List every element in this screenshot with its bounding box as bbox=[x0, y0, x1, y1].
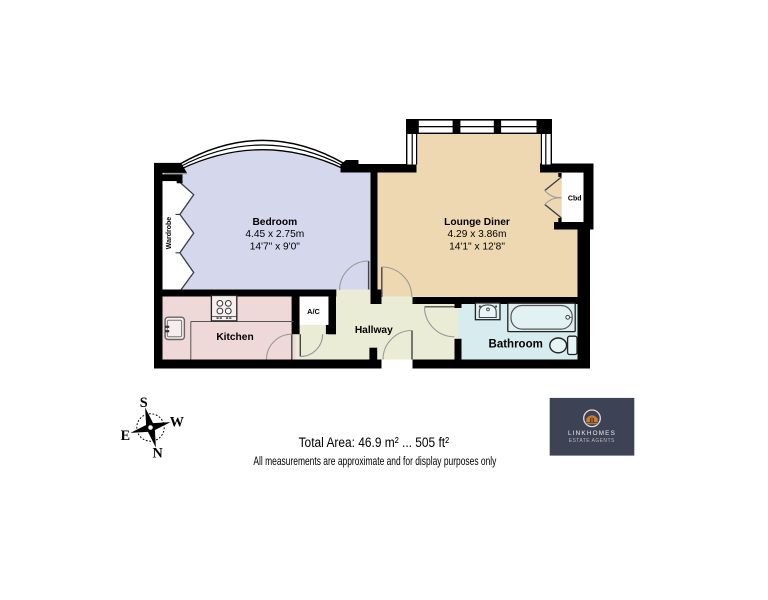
svg-text:A/C: A/C bbox=[307, 307, 320, 316]
svg-text:S: S bbox=[140, 395, 148, 411]
svg-text:14'1" x 12'8": 14'1" x 12'8" bbox=[449, 242, 505, 253]
svg-text:Hallway: Hallway bbox=[355, 325, 393, 336]
svg-text:Cbd: Cbd bbox=[568, 196, 582, 203]
svg-text:E: E bbox=[121, 428, 130, 444]
svg-text:Lounge Diner: Lounge Diner bbox=[444, 217, 510, 228]
svg-text:Bedroom: Bedroom bbox=[252, 217, 297, 228]
svg-text:Bathroom: Bathroom bbox=[489, 338, 543, 350]
svg-text:N: N bbox=[152, 446, 163, 462]
svg-text:LINKHOMES: LINKHOMES bbox=[568, 430, 616, 437]
svg-text:W: W bbox=[170, 414, 184, 430]
svg-text:14'7" x 9'0": 14'7" x 9'0" bbox=[250, 242, 301, 253]
svg-text:ESTATE AGENTS: ESTATE AGENTS bbox=[569, 438, 616, 444]
svg-text:Wardrobe: Wardrobe bbox=[166, 217, 173, 250]
svg-text:Kitchen: Kitchen bbox=[216, 332, 253, 343]
svg-text:Total Area: 46.9 m² ... 505 ft: Total Area: 46.9 m² ... 505 ft² bbox=[299, 435, 450, 451]
svg-text:4.29 x 3.86m: 4.29 x 3.86m bbox=[448, 229, 507, 240]
svg-text:4.45 x 2.75m: 4.45 x 2.75m bbox=[245, 229, 304, 240]
svg-text:All measurements are approxima: All measurements are approximate and for… bbox=[253, 454, 497, 468]
